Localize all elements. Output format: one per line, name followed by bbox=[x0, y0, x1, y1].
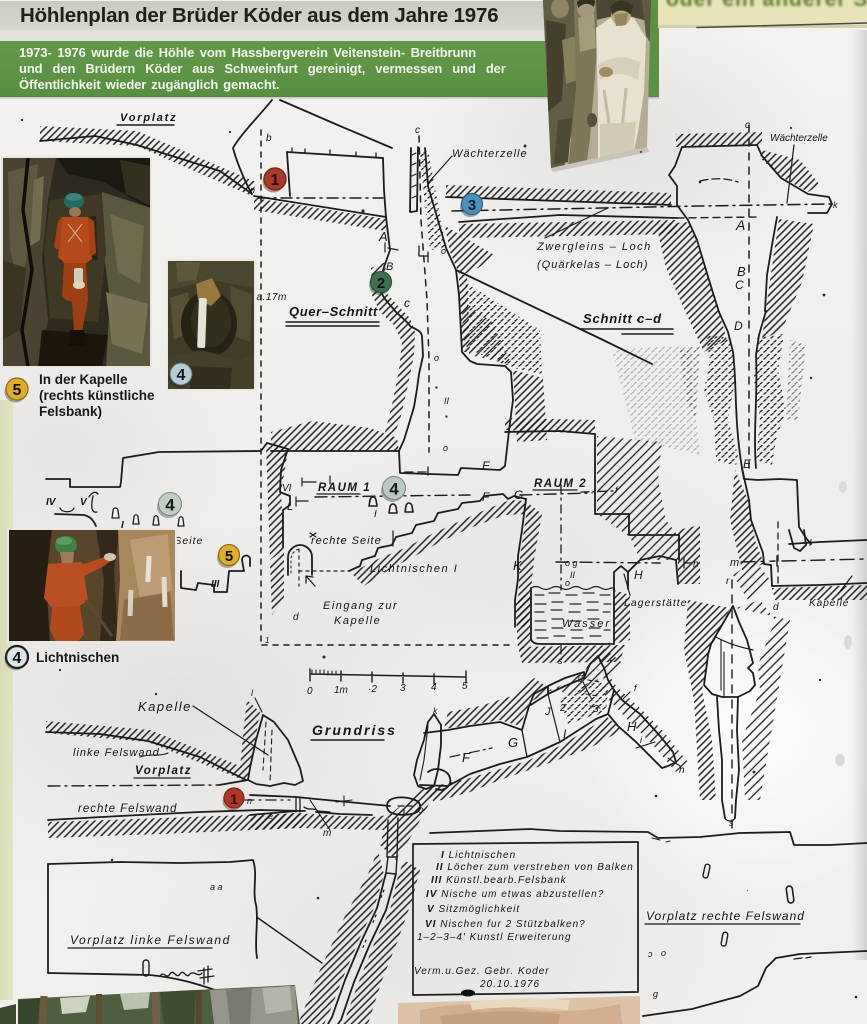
svg-text:o: o bbox=[434, 353, 439, 363]
svg-text:G: G bbox=[508, 735, 518, 750]
svg-text:I: I bbox=[809, 538, 812, 549]
svg-text:Vorplatz linke Felswand: Vorplatz linke Felswand bbox=[70, 933, 231, 947]
svg-text:IV: IV bbox=[46, 497, 57, 508]
svg-text:l: l bbox=[251, 688, 254, 698]
svg-text:o: o bbox=[565, 578, 570, 588]
svg-text:Kapelle: Kapelle bbox=[138, 699, 192, 714]
svg-text:4: 4 bbox=[165, 496, 175, 515]
svg-text:1–2–3–4' Kunstl Erweiterung: 1–2–3–4' Kunstl Erweiterung bbox=[417, 932, 572, 943]
svg-text:ca.17m: ca.17m bbox=[251, 292, 287, 303]
svg-text:1: 1 bbox=[271, 172, 280, 189]
svg-text:▪: ▪ bbox=[445, 412, 448, 421]
svg-text:c: c bbox=[404, 296, 410, 310]
svg-text:B: B bbox=[737, 264, 746, 279]
svg-text:rechte Seite: rechte Seite bbox=[311, 535, 382, 547]
svg-text:n: n bbox=[247, 796, 252, 806]
svg-text:5: 5 bbox=[13, 382, 22, 399]
svg-text:s: s bbox=[558, 656, 563, 666]
svg-text:f: f bbox=[634, 683, 638, 693]
svg-text:Zwergleins – Loch: Zwergleins – Loch bbox=[536, 241, 652, 253]
svg-text:VI: VI bbox=[282, 483, 292, 494]
svg-text:c: c bbox=[415, 125, 420, 136]
svg-text:k: k bbox=[833, 200, 838, 210]
svg-text:c: c bbox=[745, 120, 750, 131]
svg-text:1: 1 bbox=[265, 636, 269, 645]
svg-text:Eingang zur: Eingang zur bbox=[323, 600, 398, 612]
svg-text:E: E bbox=[482, 459, 491, 473]
svg-text:m: m bbox=[730, 557, 739, 569]
svg-text:2: 2 bbox=[377, 275, 385, 292]
svg-text:d: d bbox=[293, 612, 299, 623]
svg-text:II: II bbox=[444, 396, 450, 406]
svg-text:III Künstl.bearb.Felsbank: III Künstl.bearb.Felsbank bbox=[431, 875, 567, 886]
svg-text:Kapelle: Kapelle bbox=[809, 598, 849, 609]
svg-text:4: 4 bbox=[431, 682, 437, 693]
svg-text:J: J bbox=[544, 706, 551, 718]
svg-text:s: s bbox=[729, 818, 734, 828]
svg-text:5: 5 bbox=[462, 681, 468, 692]
svg-text:·: · bbox=[746, 886, 749, 895]
svg-text:Lichtnischen I: Lichtnischen I bbox=[370, 563, 458, 575]
svg-text:o: o bbox=[661, 948, 666, 958]
svg-text:g: g bbox=[653, 989, 658, 999]
svg-text:Schnitt c–d: Schnitt c–d bbox=[583, 311, 662, 326]
svg-text:·2: ·2 bbox=[368, 684, 377, 695]
svg-text:B: B bbox=[386, 261, 393, 273]
svg-text:IV Nische um etwas abzustellen: IV Nische um etwas abzustellen? bbox=[426, 889, 604, 900]
svg-text:k: k bbox=[433, 706, 438, 716]
svg-text:K: K bbox=[513, 558, 523, 573]
svg-text:3: 3 bbox=[400, 683, 406, 694]
svg-text:r: r bbox=[726, 576, 730, 587]
svg-text:G: G bbox=[514, 488, 523, 502]
svg-text:D: D bbox=[734, 319, 743, 333]
svg-text:II Löcher zum verstreben von B: II Löcher zum verstreben von Balken bbox=[436, 862, 634, 873]
svg-text:VI Nischen fur 2 Stützbalken?: VI Nischen fur 2 Stützbalken? bbox=[425, 919, 586, 930]
svg-text:3: 3 bbox=[468, 197, 476, 214]
svg-text:o g: o g bbox=[565, 558, 578, 568]
svg-text:V Sitzmöglichkeit: V Sitzmöglichkeit bbox=[427, 904, 520, 915]
svg-text:4: 4 bbox=[389, 480, 399, 499]
svg-text:ɔ: ɔ bbox=[648, 949, 653, 959]
svg-text:d: d bbox=[773, 602, 779, 613]
svg-text:n: n bbox=[250, 185, 255, 195]
svg-text:4: 4 bbox=[13, 650, 22, 667]
svg-text:E: E bbox=[743, 457, 752, 471]
svg-text:L: L bbox=[287, 501, 293, 513]
svg-text:1m: 1m bbox=[334, 685, 348, 696]
svg-text:Verm.u.Gez. Gebr. Koder: Verm.u.Gez. Gebr. Koder bbox=[414, 966, 550, 977]
svg-text:I Lichtnischen: I Lichtnischen bbox=[441, 850, 516, 861]
svg-text:5: 5 bbox=[225, 548, 233, 565]
svg-text:Lagerstätte: Lagerstätte bbox=[624, 597, 688, 609]
svg-text:20.10.1976: 20.10.1976 bbox=[479, 979, 540, 990]
svg-text:▪: ▪ bbox=[435, 383, 438, 392]
svg-text:0: 0 bbox=[307, 686, 313, 697]
svg-text:Vorplatz: Vorplatz bbox=[120, 112, 177, 124]
svg-text:Grundriss: Grundriss bbox=[312, 722, 397, 738]
svg-text:1: 1 bbox=[230, 791, 238, 807]
svg-text:a a: a a bbox=[210, 882, 223, 892]
svg-text:Vorplatz: Vorplatz bbox=[135, 765, 192, 777]
svg-text:III: III bbox=[211, 579, 220, 590]
svg-text:A: A bbox=[735, 217, 745, 233]
svg-text:Wasser: Wasser bbox=[562, 618, 611, 630]
svg-text:V: V bbox=[80, 497, 88, 508]
svg-text:Quer–Schnitt: Quer–Schnitt bbox=[289, 304, 378, 319]
svg-text:o: o bbox=[441, 246, 446, 256]
svg-text:b: b bbox=[266, 133, 272, 144]
svg-text:I: I bbox=[374, 509, 377, 520]
svg-text:II: II bbox=[570, 570, 576, 580]
svg-text:Wächterzelle: Wächterzelle bbox=[452, 148, 528, 160]
svg-text:H: H bbox=[634, 568, 643, 582]
svg-text:o: o bbox=[443, 443, 448, 453]
svg-text:linke Felswand: linke Felswand bbox=[73, 747, 160, 759]
svg-text:Vorplatz rechte Felswand: Vorplatz rechte Felswand bbox=[646, 909, 805, 923]
svg-text:Kapelle: Kapelle bbox=[334, 615, 381, 627]
svg-text:Wächterzelle: Wächterzelle bbox=[770, 133, 828, 144]
svg-text:i: i bbox=[640, 735, 643, 745]
svg-text:C: C bbox=[735, 278, 744, 292]
svg-text:A: A bbox=[378, 229, 388, 244]
svg-text:(Quärkelas – Loch): (Quärkelas – Loch) bbox=[537, 259, 649, 271]
svg-text:RAUM 1: RAUM 1 bbox=[318, 482, 371, 494]
